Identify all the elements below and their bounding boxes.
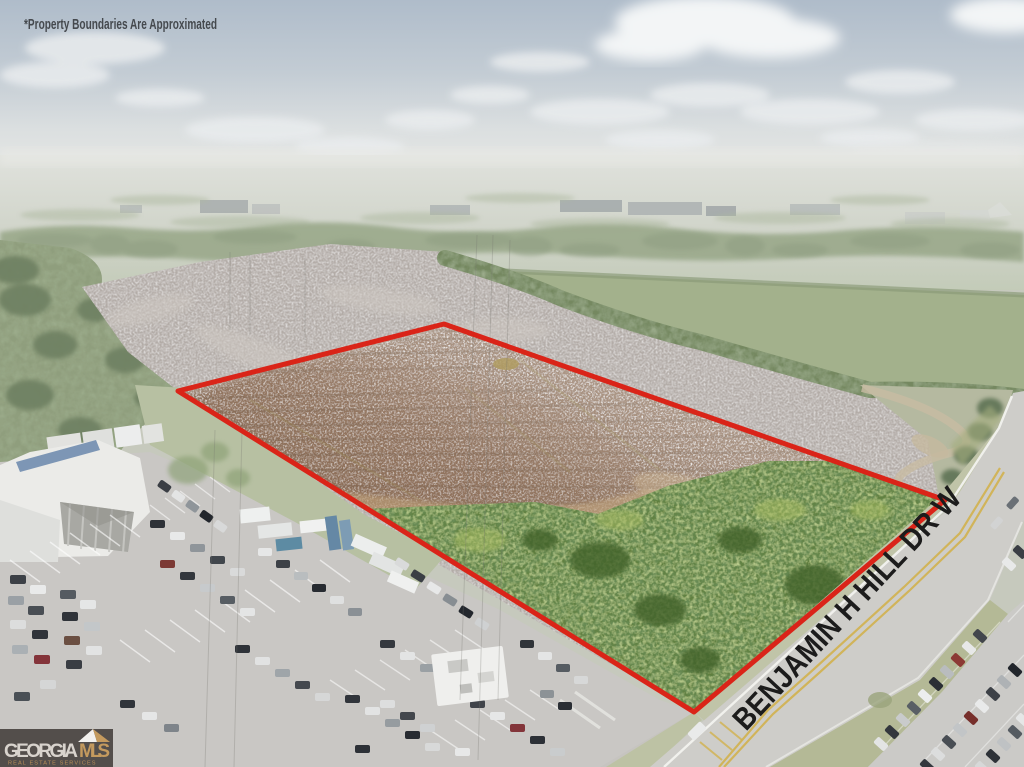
svg-text:*Property Boundaries Are Appro: *Property Boundaries Are Approximated: [24, 17, 217, 33]
svg-text:REAL ESTATE SERVICES: REAL ESTATE SERVICES: [8, 761, 97, 767]
svg-text:GEORGIA: GEORGIA: [4, 741, 78, 762]
svg-text:MLS: MLS: [79, 741, 110, 762]
